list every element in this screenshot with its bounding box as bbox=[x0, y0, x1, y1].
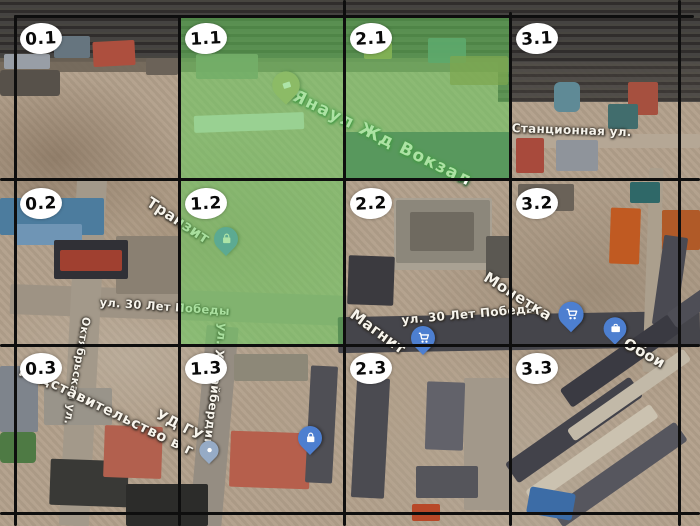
grid-line bbox=[0, 344, 700, 347]
grid-line bbox=[0, 178, 700, 181]
grid-line bbox=[14, 15, 17, 526]
grid-line bbox=[678, 0, 681, 526]
satellite-map-grid: Янаул Жд ВокзалСтанционная ул.Транзитул.… bbox=[0, 0, 700, 526]
grid-line bbox=[509, 12, 512, 526]
grid-line bbox=[178, 15, 181, 526]
grid-line bbox=[343, 0, 346, 526]
grid-line bbox=[0, 512, 700, 515]
grid-line bbox=[14, 15, 694, 18]
